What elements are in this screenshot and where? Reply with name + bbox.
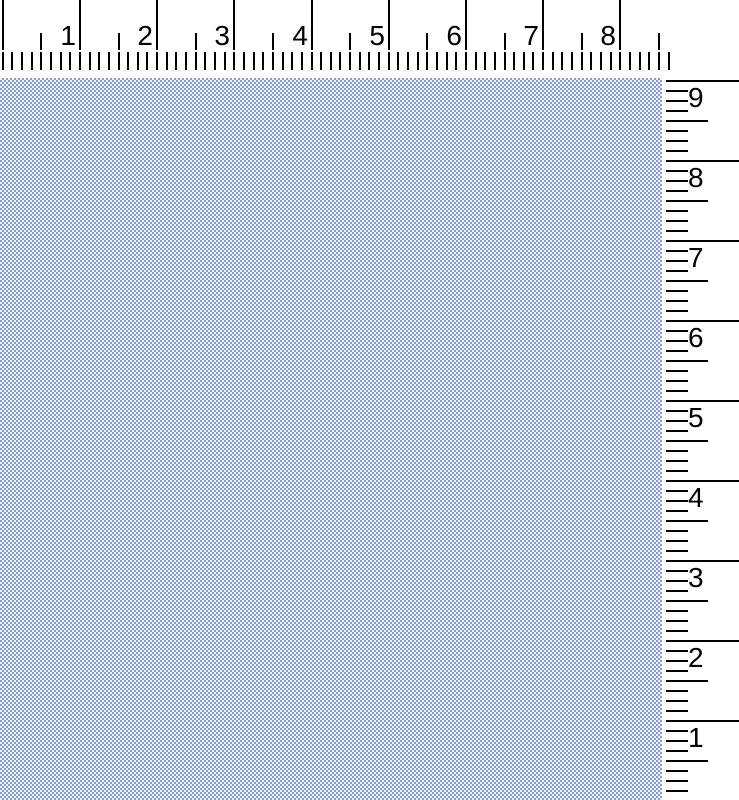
ruler-tick <box>666 380 688 382</box>
ruler-tick <box>666 790 688 792</box>
ruler-tick <box>11 52 13 70</box>
inch-label: 7 <box>499 22 539 50</box>
ruler-tick <box>600 52 602 70</box>
ruler-tick <box>243 52 245 70</box>
inch-label: 3 <box>688 564 704 592</box>
ruler-tick <box>339 52 341 70</box>
ruler-tick <box>2 52 4 70</box>
ruler-tick <box>552 52 554 70</box>
ruler-tick <box>639 52 641 70</box>
ruler-tick <box>666 670 688 672</box>
ruler-tick <box>436 52 438 70</box>
ruler-tick <box>137 52 139 70</box>
inch-label: 2 <box>113 22 153 50</box>
ruler-tick <box>666 330 688 332</box>
ruler-workspace: 12345678 987654321 <box>0 0 739 800</box>
inch-label: 8 <box>576 22 616 50</box>
ruler-tick <box>127 52 129 70</box>
ruler-tick <box>666 390 688 392</box>
ruler-tick <box>666 750 688 752</box>
ruler-tick <box>629 52 631 70</box>
ruler-tick <box>504 52 506 70</box>
ruler-tick <box>666 370 688 372</box>
ruler-tick <box>666 460 688 462</box>
ruler-tick <box>666 270 688 272</box>
vertical-ruler: 987654321 <box>662 78 739 800</box>
ruler-tick <box>666 230 688 232</box>
ruler-tick <box>349 52 351 70</box>
ruler-tick <box>388 0 390 50</box>
ruler-tick <box>666 680 708 682</box>
ruler-tick <box>291 52 293 70</box>
ruler-tick <box>330 52 332 70</box>
ruler-tick <box>446 52 448 70</box>
ruler-tick <box>666 660 688 662</box>
ruler-tick <box>89 52 91 70</box>
ruler-tick <box>368 52 370 70</box>
inch-label: 1 <box>688 724 704 752</box>
inch-label: 4 <box>688 484 704 512</box>
ruler-tick <box>21 52 23 70</box>
ruler-tick <box>146 52 148 70</box>
ruler-tick <box>475 52 477 70</box>
ruler-tick <box>666 530 688 532</box>
ruler-tick <box>666 150 688 152</box>
ruler-tick <box>513 52 515 70</box>
ruler-tick <box>666 450 688 452</box>
ruler-tick <box>465 52 467 70</box>
ruler-tick <box>69 52 71 70</box>
ruler-tick <box>253 52 255 70</box>
ruler-tick <box>156 0 158 50</box>
ruler-tick <box>666 90 688 92</box>
ruler-tick <box>666 610 688 612</box>
ruler-tick <box>40 52 42 70</box>
ruler-tick <box>282 52 284 70</box>
ruler-tick <box>666 570 688 572</box>
inch-label: 6 <box>422 22 462 50</box>
ruler-tick <box>648 52 650 70</box>
ruler-tick <box>666 440 708 442</box>
ruler-tick <box>590 52 592 70</box>
ruler-tick <box>2 0 4 50</box>
ruler-tick <box>204 52 206 70</box>
ruler-tick <box>561 52 563 70</box>
ruler-tick <box>523 52 525 70</box>
ruler-tick <box>320 52 322 70</box>
ruler-tick <box>666 590 688 592</box>
ruler-tick <box>666 540 688 542</box>
ruler-tick <box>156 52 158 70</box>
ruler-tick <box>666 710 688 712</box>
ruler-tick <box>666 170 688 172</box>
inch-label: 5 <box>688 404 704 432</box>
ruler-tick <box>542 52 544 70</box>
ruler-tick <box>666 140 688 142</box>
ruler-tick <box>272 52 274 70</box>
ruler-tick <box>666 520 708 522</box>
ruler-tick <box>666 200 708 202</box>
ruler-tick <box>666 410 688 412</box>
ruler-tick <box>666 360 708 362</box>
ruler-tick <box>108 52 110 70</box>
ruler-tick <box>666 690 688 692</box>
ruler-tick <box>666 730 688 732</box>
ruler-tick <box>666 430 688 432</box>
ruler-tick <box>581 52 583 70</box>
ruler-tick <box>619 0 621 50</box>
ruler-tick <box>666 510 688 512</box>
ruler-tick <box>233 52 235 70</box>
ruler-tick <box>666 110 688 112</box>
ruler-tick <box>666 620 688 622</box>
ruler-tick <box>262 52 264 70</box>
ruler-tick <box>455 52 457 70</box>
ruler-tick <box>666 770 688 772</box>
ruler-tick <box>666 630 688 632</box>
ruler-tick <box>214 52 216 70</box>
ruler-tick <box>668 52 670 70</box>
ruler-tick <box>484 52 486 70</box>
fabric-pattern-canvas <box>0 78 662 800</box>
ruler-tick <box>166 52 168 70</box>
ruler-tick <box>532 52 534 70</box>
inch-label: 8 <box>688 164 704 192</box>
ruler-tick <box>311 0 313 50</box>
ruler-tick <box>233 0 235 50</box>
ruler-tick <box>666 310 688 312</box>
ruler-tick <box>494 52 496 70</box>
ruler-tick <box>175 52 177 70</box>
ruler-tick <box>666 780 688 782</box>
ruler-tick <box>185 52 187 70</box>
ruler-tick <box>666 340 688 342</box>
ruler-tick <box>658 33 660 50</box>
ruler-tick <box>359 52 361 70</box>
ruler-tick <box>610 52 612 70</box>
ruler-tick <box>571 52 573 70</box>
ruler-tick <box>666 760 708 762</box>
ruler-tick <box>311 52 313 70</box>
ruler-tick <box>666 280 708 282</box>
inch-label: 9 <box>688 84 704 112</box>
ruler-tick <box>542 0 544 50</box>
ruler-tick <box>388 52 390 70</box>
ruler-tick <box>79 52 81 70</box>
ruler-tick <box>397 52 399 70</box>
inch-label: 5 <box>345 22 385 50</box>
ruler-tick <box>666 300 688 302</box>
ruler-tick <box>195 52 197 70</box>
ruler-tick <box>666 700 688 702</box>
inch-label: 4 <box>268 22 308 50</box>
ruler-tick <box>79 0 81 50</box>
ruler-tick <box>426 52 428 70</box>
ruler-tick <box>619 52 621 70</box>
ruler-tick <box>666 190 688 192</box>
inch-label: 3 <box>190 22 230 50</box>
ruler-tick <box>31 52 33 70</box>
ruler-tick <box>60 52 62 70</box>
ruler-tick <box>666 350 688 352</box>
inch-label: 7 <box>688 244 704 272</box>
ruler-tick <box>417 52 419 70</box>
ruler-tick <box>666 130 688 132</box>
ruler-tick <box>666 420 688 422</box>
ruler-tick <box>98 52 100 70</box>
ruler-tick <box>407 52 409 70</box>
ruler-tick <box>666 550 688 552</box>
inch-label: 1 <box>36 22 76 50</box>
ruler-tick <box>378 52 380 70</box>
ruler-tick <box>666 210 688 212</box>
ruler-tick <box>50 52 52 70</box>
inch-label: 2 <box>688 644 704 672</box>
inch-label: 6 <box>688 324 704 352</box>
ruler-tick <box>666 600 708 602</box>
ruler-tick <box>666 500 688 502</box>
ruler-tick <box>666 180 688 182</box>
ruler-tick <box>666 740 688 742</box>
ruler-tick <box>658 52 660 70</box>
ruler-tick <box>666 100 688 102</box>
ruler-tick <box>666 290 688 292</box>
ruler-tick <box>666 580 688 582</box>
ruler-tick <box>666 220 688 222</box>
ruler-tick <box>301 52 303 70</box>
horizontal-ruler: 12345678 <box>0 0 739 78</box>
ruler-tick <box>118 52 120 70</box>
ruler-tick <box>224 52 226 70</box>
ruler-tick <box>666 490 688 492</box>
ruler-tick <box>666 120 708 122</box>
ruler-tick <box>465 0 467 50</box>
ruler-tick <box>666 470 688 472</box>
ruler-tick <box>666 250 688 252</box>
ruler-tick <box>666 260 688 262</box>
ruler-tick <box>666 650 688 652</box>
